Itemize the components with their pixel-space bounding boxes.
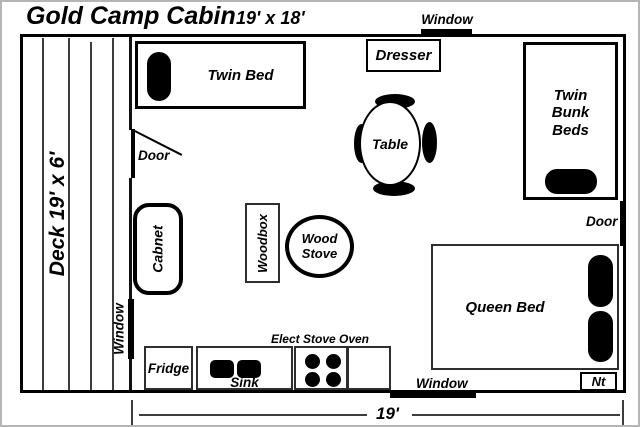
- woodbox-label: Woodbox: [255, 214, 270, 273]
- sink-label: Sink: [198, 376, 291, 390]
- right-door-label: Door: [586, 214, 618, 229]
- bottom-window-marker: [390, 391, 476, 398]
- burner-icon: [305, 372, 320, 387]
- top-window-label: Window: [418, 12, 476, 27]
- queen-bed-pillow: [588, 255, 613, 307]
- cabinet: Cabnet: [133, 203, 183, 295]
- sink-counter: Sink: [196, 346, 293, 390]
- dimension-tick-left: [131, 400, 133, 425]
- electric-stove: [294, 346, 348, 390]
- wood-stove-label: Wood Stove: [297, 232, 343, 261]
- page-title: Gold Camp Cabin: [26, 2, 236, 30]
- dimension-line-right: [412, 414, 620, 416]
- top-window-marker: [421, 29, 472, 36]
- deck-plank: [90, 42, 92, 390]
- dresser: Dresser: [366, 39, 441, 72]
- deck-label: Deck 19' x 6': [46, 152, 70, 276]
- bottom-window-label: Window: [416, 376, 468, 391]
- left-door-leaf: [131, 129, 135, 178]
- dimension-line-left: [139, 414, 367, 416]
- twin-bunk-beds: Twin Bunk Beds: [523, 42, 618, 200]
- counter-box: [347, 346, 391, 390]
- twin-bed: Twin Bed: [135, 41, 306, 109]
- twin-bunk-beds-label: Twin Bunk Beds: [543, 87, 599, 139]
- dimension-label: 19': [376, 404, 399, 424]
- burner-icon: [326, 372, 341, 387]
- queen-bed-pillow: [588, 311, 613, 362]
- wood-stove: Wood Stove: [285, 215, 354, 278]
- chair-icon: [422, 122, 437, 163]
- left-window-marker: [128, 299, 134, 359]
- interior-wall-upper: [129, 37, 132, 130]
- page-title-dimensions: 19' x 18': [236, 8, 305, 28]
- left-door-label: Door: [138, 148, 170, 163]
- twin-bed-label: Twin Bed: [178, 44, 303, 106]
- right-door-marker: [620, 201, 626, 246]
- deck-plank: [42, 38, 44, 390]
- cabinet-label: Cabnet: [150, 225, 166, 272]
- dining-table: Table: [359, 101, 421, 186]
- nightstand: Nt: [580, 372, 617, 391]
- bunk-bed-pillow: [545, 169, 597, 194]
- left-window-label: Window: [112, 303, 127, 355]
- burner-icon: [326, 354, 341, 369]
- stove-oven-label: Elect Stove Oven: [264, 332, 376, 346]
- woodbox: Woodbox: [245, 203, 280, 283]
- fridge: Fridge: [144, 346, 193, 390]
- floor-plan-page: Gold Camp Cabin 19' x 18' Deck 19' x 6' …: [0, 0, 640, 427]
- queen-bed: Queen Bed: [431, 244, 619, 370]
- burner-icon: [305, 354, 320, 369]
- twin-bed-pillow: [147, 52, 171, 101]
- queen-bed-label: Queen Bed: [433, 246, 577, 368]
- dimension-tick-right: [622, 400, 624, 425]
